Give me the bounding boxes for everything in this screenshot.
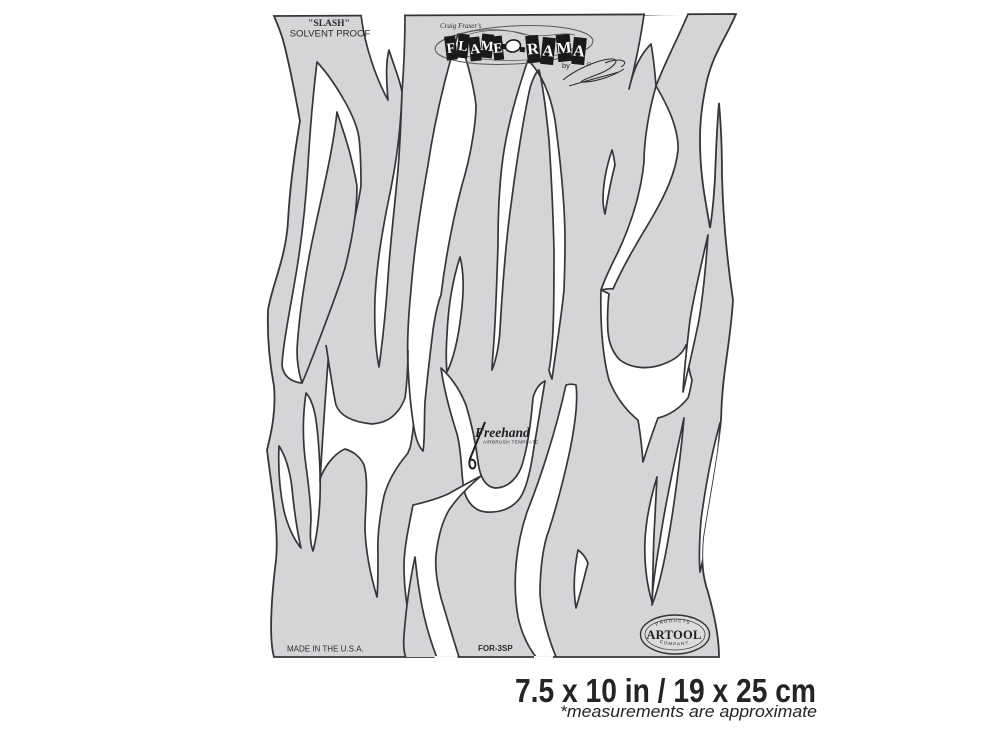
svg-text:A: A	[572, 42, 586, 60]
svg-text:Craig Fraser's: Craig Fraser's	[440, 22, 482, 30]
svg-text:"SLASH": "SLASH"	[308, 19, 350, 29]
svg-text:FOR-3SP: FOR-3SP	[478, 644, 513, 653]
svg-text:M: M	[556, 39, 573, 57]
svg-text:A: A	[541, 42, 555, 60]
svg-text:R: R	[526, 40, 540, 58]
svg-text:L: L	[457, 39, 468, 55]
svg-text:E: E	[493, 41, 504, 57]
svg-text:SOLVENT PROOF: SOLVENT PROOF	[290, 29, 371, 40]
svg-text:AIRBRUSH TEMPLATE: AIRBRUSH TEMPLATE	[483, 440, 539, 445]
svg-text:F: F	[446, 41, 456, 57]
svg-text:ARTOOL: ARTOOL	[646, 628, 701, 642]
svg-text:*measurements are approximate: *measurements are approximate	[560, 703, 817, 721]
svg-text:MADE IN THE U.S.A.: MADE IN THE U.S.A.	[287, 645, 364, 654]
svg-text:by: by	[562, 61, 570, 70]
